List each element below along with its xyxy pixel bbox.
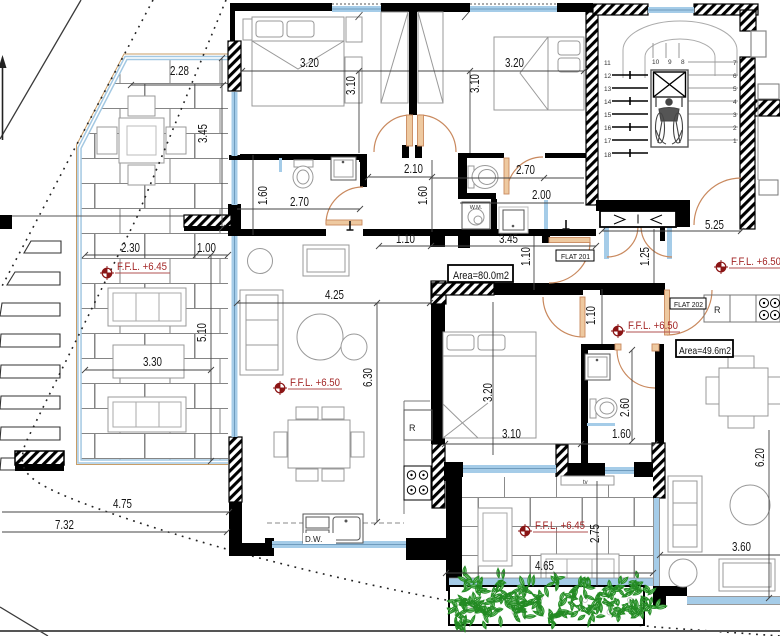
svg-text:3.30: 3.30: [143, 355, 162, 369]
svg-text:3.10: 3.10: [468, 74, 482, 93]
svg-text:4.25: 4.25: [325, 288, 344, 302]
svg-text:17: 17: [604, 138, 612, 145]
svg-text:6.30: 6.30: [361, 368, 375, 387]
svg-text:18: 18: [604, 152, 612, 159]
svg-text:2.10: 2.10: [404, 162, 423, 176]
svg-text:4: 4: [733, 99, 737, 106]
svg-text:3.45: 3.45: [499, 232, 518, 246]
svg-text:W.M.: W.M.: [470, 205, 483, 211]
svg-text:2.00: 2.00: [532, 188, 551, 202]
svg-text:1.10: 1.10: [584, 306, 598, 325]
svg-text:12: 12: [604, 73, 612, 80]
svg-text:1.25: 1.25: [638, 247, 652, 266]
svg-text:2.75: 2.75: [588, 524, 602, 543]
svg-text:Area=49.6m2: Area=49.6m2: [679, 345, 731, 357]
svg-text:16: 16: [604, 125, 612, 132]
svg-text:3.20: 3.20: [505, 56, 524, 70]
svg-text:Area=80.0m2: Area=80.0m2: [453, 270, 509, 282]
svg-text:6.20: 6.20: [753, 448, 767, 467]
svg-text:6: 6: [733, 73, 737, 80]
svg-text:13: 13: [604, 86, 612, 93]
svg-text:7: 7: [733, 60, 737, 67]
svg-text:R: R: [409, 423, 416, 433]
svg-text:1.10: 1.10: [396, 232, 415, 246]
svg-text:2: 2: [733, 125, 737, 132]
svg-text:1.60: 1.60: [416, 186, 430, 205]
svg-text:F.F.L. +6.50: F.F.L. +6.50: [628, 320, 678, 332]
svg-text:4.75: 4.75: [113, 497, 132, 511]
svg-text:9: 9: [668, 59, 672, 66]
svg-text:5.25: 5.25: [705, 218, 724, 232]
svg-text:3: 3: [733, 112, 737, 119]
svg-text:2.70: 2.70: [516, 163, 535, 177]
svg-text:1.00: 1.00: [197, 241, 216, 255]
svg-text:F.F.L. +6.50: F.F.L. +6.50: [290, 377, 340, 389]
svg-text:D.W.: D.W.: [305, 535, 322, 544]
svg-text:3.45: 3.45: [196, 124, 210, 143]
svg-text:14: 14: [604, 99, 612, 106]
svg-text:1: 1: [733, 138, 737, 145]
svg-text:1.60: 1.60: [612, 427, 631, 441]
svg-text:10: 10: [652, 59, 660, 66]
svg-text:8: 8: [681, 59, 685, 66]
svg-text:F.F.L. +6.50: F.F.L. +6.50: [731, 256, 780, 268]
svg-text:F.F.L. +6.45: F.F.L. +6.45: [535, 520, 585, 532]
svg-text:2.30: 2.30: [121, 241, 140, 255]
svg-text:2.70: 2.70: [290, 195, 309, 209]
svg-text:5: 5: [733, 86, 737, 93]
svg-text:15: 15: [604, 112, 612, 119]
svg-text:2.28: 2.28: [170, 64, 189, 78]
svg-text:tv: tv: [583, 480, 588, 486]
svg-text:FLAT 202: FLAT 202: [674, 300, 703, 309]
svg-text:4.65: 4.65: [535, 559, 554, 573]
svg-text:3.10: 3.10: [344, 76, 358, 95]
svg-text:F.F.L. +6.45: F.F.L. +6.45: [117, 261, 167, 273]
svg-text:R: R: [714, 305, 721, 315]
svg-text:1.10: 1.10: [519, 247, 533, 266]
svg-text:3.10: 3.10: [502, 427, 521, 441]
svg-text:11: 11: [604, 60, 611, 67]
svg-text:7.32: 7.32: [55, 518, 74, 532]
svg-text:3.20: 3.20: [481, 383, 495, 402]
svg-text:3.60: 3.60: [732, 540, 751, 554]
svg-text:2.60: 2.60: [618, 398, 632, 417]
svg-text:5.10: 5.10: [195, 323, 209, 342]
svg-text:1.60: 1.60: [256, 186, 270, 205]
svg-text:3.20: 3.20: [300, 56, 319, 70]
svg-text:FLAT 201: FLAT 201: [561, 252, 590, 261]
